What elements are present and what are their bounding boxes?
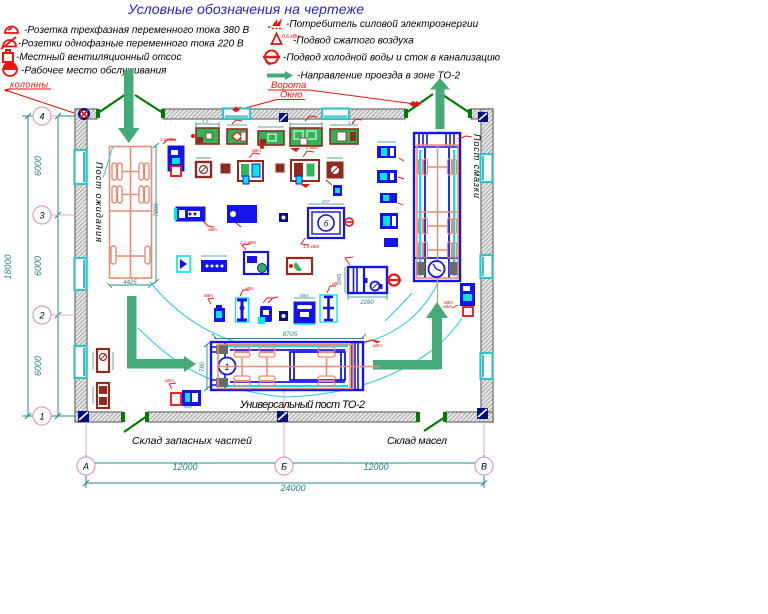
svg-text:В: В <box>481 462 487 472</box>
svg-text:18000: 18000 <box>3 254 13 279</box>
svg-text:1: 1 <box>39 412 44 422</box>
svg-text:-Местный вентиляционный отсос: -Местный вентиляционный отсос <box>16 52 181 63</box>
svg-text:колонны: колонны <box>10 80 48 90</box>
svg-text:-Розетки однофазные переменног: -Розетки однофазные переменного тока 220… <box>18 38 244 50</box>
svg-text:б: б <box>324 220 329 229</box>
svg-text:3: 3 <box>39 211 44 221</box>
svg-text:1,0 кВт: 1,0 кВт <box>160 137 177 142</box>
svg-text:2260: 2260 <box>359 300 374 306</box>
svg-text:4: 4 <box>39 112 44 122</box>
svg-text:-Розетка трехфазная переменног: -Розетка трехфазная переменного тока 380… <box>24 24 249 36</box>
svg-text:Б: Б <box>281 462 287 472</box>
svg-text:1,5 кВт: 1,5 кВт <box>303 244 320 249</box>
svg-text:277: 277 <box>321 199 330 204</box>
svg-text:12000: 12000 <box>363 462 388 472</box>
svg-text:-Подвод холодной воды и сток в: -Подвод холодной воды и сток в канализац… <box>283 53 501 64</box>
svg-text:-Рабочее место обслуживания: -Рабочее место обслуживания <box>21 65 167 77</box>
svg-text:кВт: кВт <box>444 300 453 305</box>
svg-text:24000: 24000 <box>279 483 305 493</box>
svg-text:2: 2 <box>38 311 44 321</box>
svg-text:Склад масел: Склад масел <box>387 435 447 447</box>
svg-text:Окно: Окно <box>280 90 302 101</box>
svg-text:кВт: кВт <box>373 343 382 348</box>
svg-text:2 кВт: 2 кВт <box>305 145 319 150</box>
svg-text:-Подвод сжатого воздуха: -Подвод сжатого воздуха <box>293 36 414 47</box>
svg-text:кВт: кВт <box>165 378 174 383</box>
svg-text:кВт: кВт <box>245 286 254 291</box>
svg-text:8705: 8705 <box>283 331 298 338</box>
svg-text:кВт: кВт <box>208 227 217 232</box>
svg-text:6000: 6000 <box>33 256 43 276</box>
svg-text:Условные обозначения на чертеж: Условные обозначения на чертеже <box>127 1 364 17</box>
svg-text:Склад запасных частей: Склад запасных частей <box>132 435 252 447</box>
svg-text:кВт: кВт <box>332 281 341 286</box>
svg-text:-Потребитель силовой электроэн: -Потребитель силовой электроэнергии <box>286 18 479 30</box>
svg-text:6000: 6000 <box>33 156 43 176</box>
svg-text:2,2 кВт: 2,2 кВт <box>239 240 257 245</box>
svg-text:кВт: кВт <box>300 293 309 298</box>
svg-text:кВт: кВт <box>252 148 261 153</box>
svg-text:Универсальный пост ТО-2: Универсальный пост ТО-2 <box>239 399 365 411</box>
svg-text:12000: 12000 <box>172 462 197 472</box>
svg-text:4425: 4425 <box>123 280 137 286</box>
svg-text:1,0: 1,0 <box>202 119 209 124</box>
svg-text:А: А <box>82 462 89 472</box>
svg-text:-Направление проезда в зоне ТО: -Направление проезда в зоне ТО-2 <box>297 71 461 82</box>
svg-text:6000: 6000 <box>33 356 43 376</box>
svg-text:Пост ожидания: Пост ожидания <box>94 162 104 242</box>
svg-text:780: 780 <box>200 361 206 372</box>
svg-text:Пост смазки: Пост смазки <box>472 134 482 198</box>
svg-text:кВт: кВт <box>204 293 213 298</box>
svg-text:7000: 7000 <box>154 203 160 217</box>
